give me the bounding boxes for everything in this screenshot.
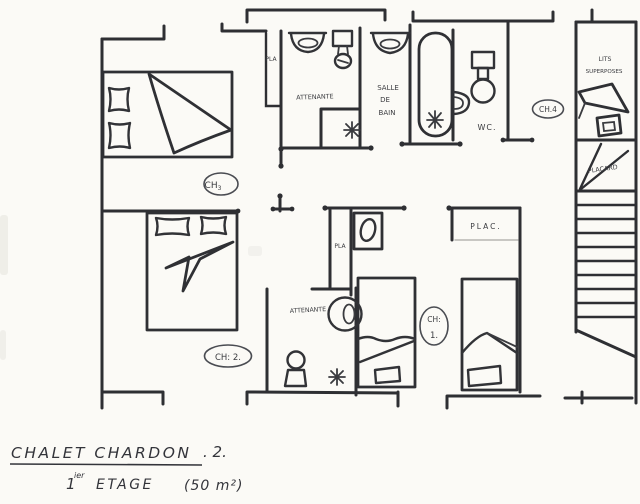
blanket-fold [149,74,231,153]
bathtub [419,33,452,136]
bed-ch1-right [462,279,517,390]
drain-icon [427,111,443,128]
washbasin-attenante-top [289,33,326,52]
label-pla-mid: PLA [334,243,346,250]
room-label-ch4: CH.4 [539,105,557,114]
stair-steps [576,205,636,317]
label-bain: BAIN [379,109,396,117]
interior-walls [102,22,532,395]
toilet-attenante-low [285,352,306,387]
bed-ch1-left [358,278,415,387]
bed-ch2 [147,213,237,330]
label-superposes: SUPERPOSES [586,69,623,75]
shower-head-top-icon [344,122,360,138]
floor-plan-sketch: CH3 CH.4 CH: 1. CH: 2. PLA ATTENANTE SAL… [0,0,640,504]
blanket-edge [358,337,415,341]
room-label-ch3-sub: 3 [218,185,222,192]
title-block: CHALET CHARDON . 2. 1 ier ETAGE (50 m²) [10,443,243,494]
washbasin-salle-de-bain [371,33,410,53]
pillow [109,123,130,148]
room-label-ch1-line1: CH: [427,315,440,324]
floor-superscript: ier [74,471,85,480]
label-attenante-top: ATTENANTE [296,92,334,101]
title-main: CHALET CHARDON [11,444,192,462]
title-suffix: . 2. [203,443,227,461]
label-salle: SALLE [377,84,399,92]
floor-plan-drawing: CH3 CH.4 CH: 1. CH: 2. PLA ATTENANTE SAL… [0,0,640,504]
blanket-fold [360,341,414,362]
blanket-fold [487,333,517,347]
bunk-bed [579,84,628,136]
label-attenante-low: ATTENANTE [290,306,327,315]
bed-ch3 [103,72,232,157]
stair-column [576,22,636,403]
title-underline [10,464,202,465]
floor-area: (50 m²) [184,478,243,494]
svg-text:CH3: CH3 [205,181,222,192]
label-wc: WC. [477,123,496,132]
shower-head-low-icon [329,369,345,385]
blanket-fold [166,242,233,291]
room-badge-ch2: CH: 2. [205,345,252,367]
room-badge-ch1: CH: 1. [420,307,448,345]
room-badge-ch3: CH3 [204,173,238,195]
sink-mid [354,213,382,249]
label-lits: LITS [599,56,612,63]
pillow [468,366,501,386]
pillow [109,88,129,111]
floor-word: ETAGE [96,477,154,493]
label-de: DE [380,96,390,104]
room-badge-ch4: CH.4 [533,100,564,118]
stair-diagonal [576,330,636,357]
pillow [375,367,400,383]
plan-labels: PLA ATTENANTE SALLE DE BAIN WC. LITS SUP… [265,56,622,315]
label-plac: PLAC. [470,222,502,231]
washbasin-wc [454,92,469,114]
room-label-ch2: CH: 2. [215,353,241,363]
label-pla-top: PLA [265,56,277,63]
pillow [201,217,226,234]
toilet-attenante-top [333,31,352,68]
toilet-wc [472,52,495,103]
room-label-ch3: CH [205,181,218,191]
room-label-ch1-line2: 1. [430,331,438,341]
pillow [156,218,189,235]
